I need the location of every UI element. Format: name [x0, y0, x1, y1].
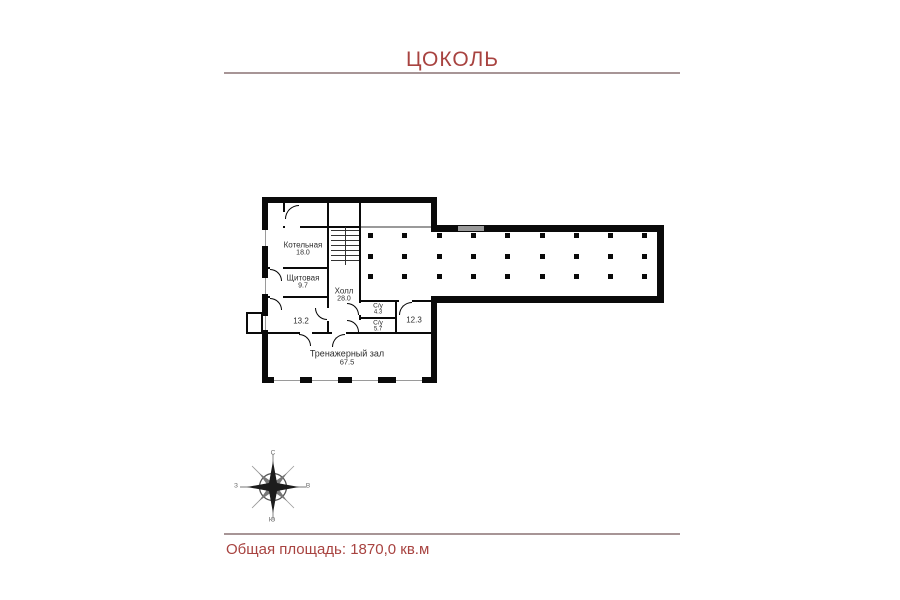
compass-east-label: В [306, 483, 310, 490]
column-marker [368, 254, 373, 259]
room-label-12-3: 12.3 [406, 315, 422, 324]
compass-north-label: С [271, 450, 276, 457]
column-marker [540, 254, 545, 259]
column-marker [471, 254, 476, 259]
column-marker [540, 274, 545, 279]
door-gap [285, 226, 300, 228]
stair-tread [331, 235, 359, 236]
column-marker [642, 274, 647, 279]
compass-west-label: З [234, 483, 238, 490]
stair-tread [331, 250, 359, 251]
column-marker [368, 233, 373, 238]
column-marker [471, 274, 476, 279]
footer-rule [224, 533, 680, 535]
hall-outline [431, 225, 664, 303]
interior-wall [283, 203, 285, 212]
window-opening [262, 278, 268, 294]
room-area: 9.7 [287, 283, 320, 291]
window-opening [312, 377, 338, 383]
window-opening [274, 377, 300, 383]
door-gap [359, 320, 361, 332]
column-marker [437, 274, 442, 279]
window-opening [262, 230, 268, 246]
column-marker [402, 233, 407, 238]
room-label-kotelnaya: Котельная 18.0 [284, 240, 323, 257]
page: ЦОКОЛЬ [0, 0, 900, 600]
door-gap [327, 308, 329, 321]
column-marker [505, 274, 510, 279]
column-marker [574, 233, 579, 238]
room-area: 67.5 [310, 359, 384, 368]
column-marker [471, 233, 476, 238]
column-marker [402, 254, 407, 259]
staircase [331, 227, 359, 265]
title-rule [224, 72, 680, 74]
column-marker [608, 254, 613, 259]
compass-south-label: Ю [269, 517, 276, 524]
room-label-su-2: С/у 5.7 [373, 319, 383, 332]
room-label-hall: Холл 28.0 [335, 286, 354, 303]
column-marker [642, 233, 647, 238]
stair-tread [331, 240, 359, 241]
room-label-gym: Тренажерный зал 67.5 [310, 349, 384, 368]
room-area: 28.0 [335, 296, 354, 304]
room-area: 12.3 [406, 315, 422, 324]
window-opening [396, 377, 422, 383]
column-marker [574, 254, 579, 259]
room-area: 5.7 [373, 327, 383, 333]
room-name: Щитовая [287, 273, 320, 282]
door-gap [359, 303, 361, 315]
interior-wall [268, 332, 433, 334]
room-name: С/у [373, 302, 383, 309]
stair-tread [331, 255, 359, 256]
page-title: ЦОКОЛЬ [225, 48, 680, 72]
column-marker [505, 233, 510, 238]
column-marker [608, 233, 613, 238]
room-label-13-2: 13.2 [293, 316, 309, 325]
column-marker [642, 254, 647, 259]
wall-opening [430, 232, 442, 296]
room-label-shchitovaya: Щитовая 9.7 [287, 273, 320, 290]
column-marker [608, 274, 613, 279]
entry-porch [246, 312, 263, 334]
glass-partition [361, 226, 431, 228]
room-name: С/у [373, 319, 383, 326]
room-area: 18.0 [284, 250, 323, 258]
room-label-su-1: С/у 4.3 [373, 302, 383, 315]
column-marker [437, 254, 442, 259]
window-opening [352, 377, 378, 383]
stair-tread [331, 260, 359, 261]
room-area: 13.2 [293, 316, 309, 325]
hall-window-band [458, 226, 484, 231]
column-marker [540, 233, 545, 238]
room-name: Холл [335, 286, 354, 295]
total-area-text: Общая площадь: 1870,0 кв.м [226, 541, 429, 558]
column-marker [368, 274, 373, 279]
room-area: 4.3 [373, 310, 383, 316]
column-marker [437, 233, 442, 238]
stair-tread [331, 230, 359, 231]
column-marker [505, 254, 510, 259]
stair-tread [331, 245, 359, 246]
compass-rose-icon [235, 449, 311, 525]
room-name: Котельная [284, 240, 323, 249]
column-marker [574, 274, 579, 279]
column-marker [402, 274, 407, 279]
